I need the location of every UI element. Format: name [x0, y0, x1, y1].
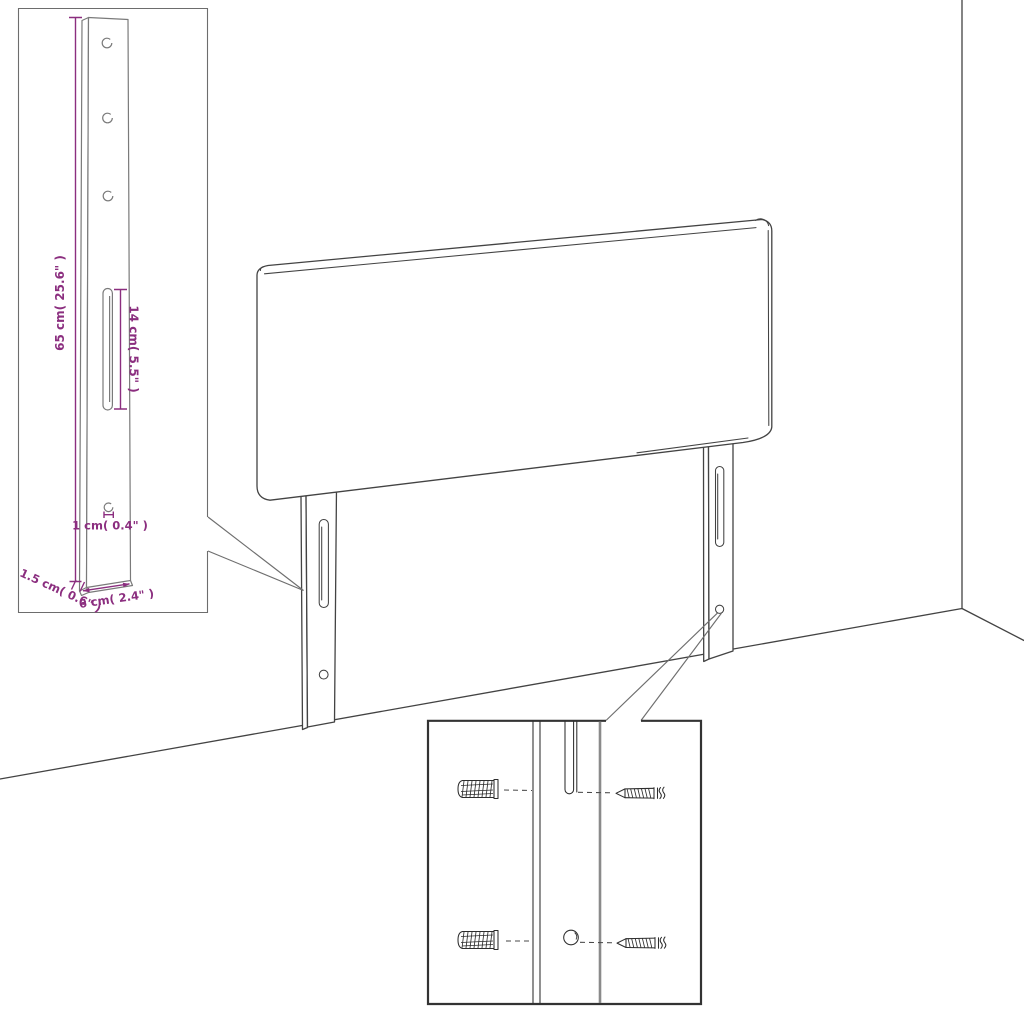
dimension-height: 65 cm( 25.6" ): [53, 18, 82, 582]
dimension-hole-label: 1 cm( 0.4" ): [72, 519, 148, 533]
floor-line-right: [962, 609, 1024, 641]
bracket-callout-lines: [208, 517, 304, 591]
left-mounting-leg: [301, 487, 337, 730]
bracket-drawing: [80, 18, 133, 596]
headboard-outline: [257, 220, 772, 501]
diagram-canvas: 65 cm( 25.6" ) 14 cm( 5.5" ) 1 cm( 0.4" …: [0, 0, 1024, 1024]
bracket-front-face: [87, 18, 131, 588]
headboard-assembly-diagram: 65 cm( 25.6" ) 14 cm( 5.5" ) 1 cm( 0.4" …: [0, 0, 1024, 1024]
bracket-callout-lower-line: [208, 551, 304, 591]
bracket-callout-upper-line: [208, 517, 304, 591]
hole-callout-right-line: [641, 613, 721, 720]
bracket-detail-inset: 65 cm( 25.6" ) 14 cm( 5.5" ) 1 cm( 0.4" …: [18, 9, 208, 615]
headboard-right-edge-line: [768, 231, 769, 426]
dimension-height-label: 65 cm( 25.6" ): [53, 255, 67, 351]
headboard-panel: [257, 219, 772, 500]
hole-callout-left-line: [606, 613, 717, 720]
right-mounting-leg: [704, 440, 734, 662]
hardware-detail-inset: [428, 721, 701, 1004]
dimension-slot-label: 14 cm( 5.5" ): [127, 305, 141, 392]
